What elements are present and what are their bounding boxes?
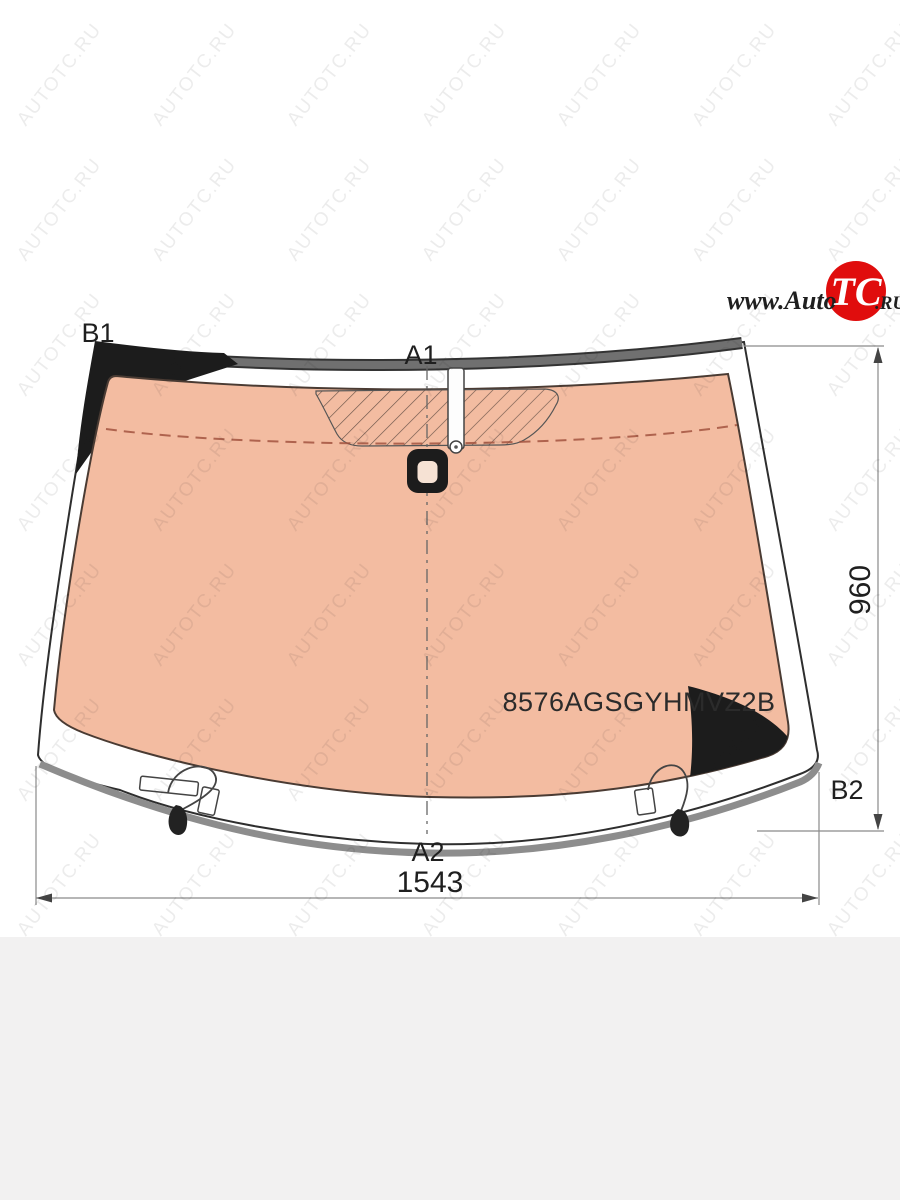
arrow-up (874, 347, 883, 363)
mirror-stem-pivot-dot (454, 445, 458, 449)
logo-suffix-text: .RU (875, 293, 900, 314)
sensor-hatch-area (316, 389, 558, 446)
label-b1: B1 (81, 318, 114, 348)
footer-band (0, 937, 900, 1200)
windshield-diagram: B1 A1 A2 B2 1543 960 8576AGSGYHMVZ2B www… (0, 0, 900, 1200)
logo-prefix-text: www.Auto (727, 286, 837, 315)
arrow-right (802, 894, 818, 903)
label-a2: A2 (411, 837, 444, 867)
width-dimension-value: 1543 (397, 866, 464, 899)
arrow-down (874, 814, 883, 830)
height-dimension-value: 960 (844, 565, 877, 615)
part-number: 8576AGSGYHMVZ2B (502, 687, 775, 717)
site-logo: www.Auto TC .RU (727, 261, 900, 321)
screenshot-root: B1 A1 A2 B2 1543 960 8576AGSGYHMVZ2B www… (0, 0, 900, 1200)
arrow-left (36, 894, 52, 903)
mirror-mount-hole (418, 461, 438, 483)
right-clip-bracket (634, 788, 655, 815)
label-b2: B2 (830, 775, 863, 805)
label-a1: A1 (404, 340, 437, 370)
mirror-stem (448, 368, 464, 449)
